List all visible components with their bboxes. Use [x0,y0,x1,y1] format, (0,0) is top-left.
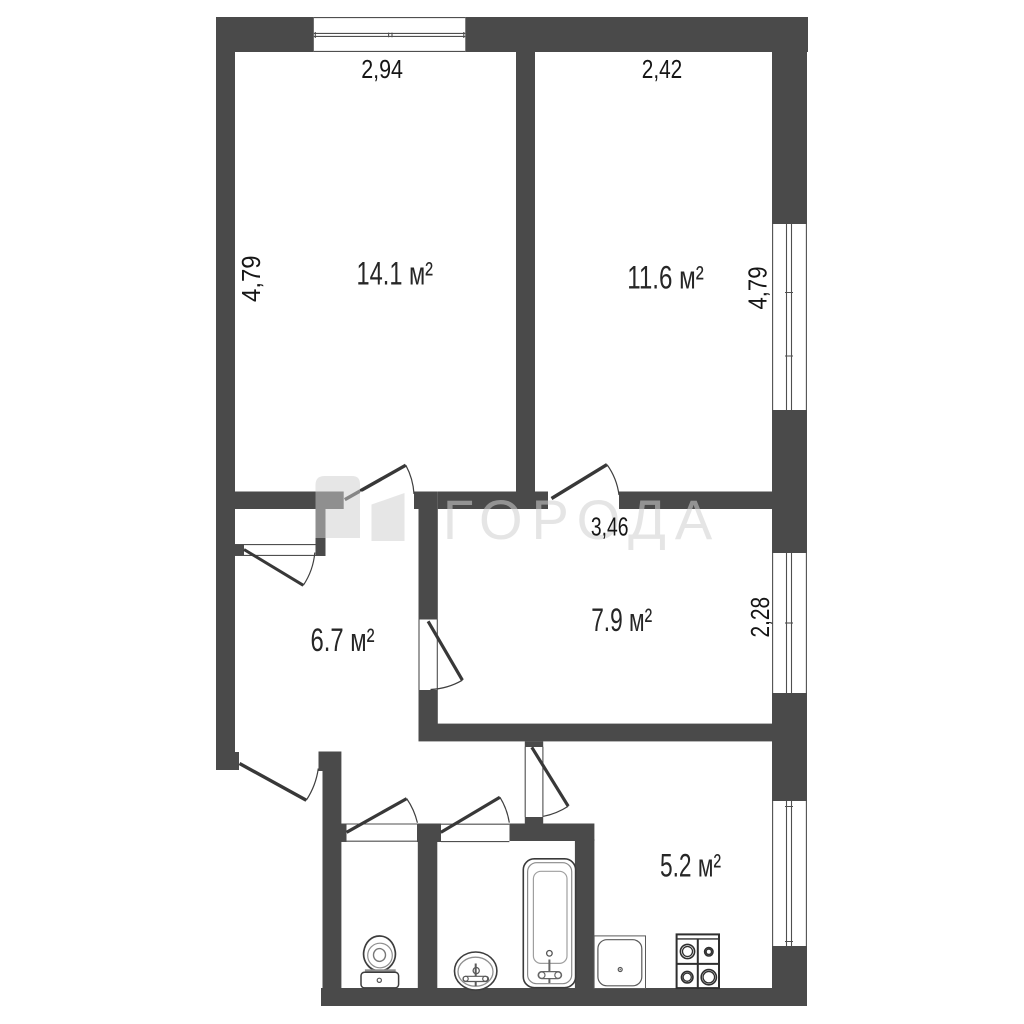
svg-text:5.2 м²: 5.2 м² [660,847,721,884]
svg-text:11.6 м²: 11.6 м² [627,259,704,296]
svg-text:6.7 м²: 6.7 м² [311,621,375,658]
svg-text:2,94: 2,94 [361,56,403,84]
svg-text:2,42: 2,42 [642,56,683,84]
svg-text:4,79: 4,79 [745,267,773,310]
svg-text:3,46: 3,46 [591,514,629,542]
svg-text:7.9 м²: 7.9 м² [591,601,652,638]
svg-text:2,28: 2,28 [747,597,775,638]
svg-text:14.1 м²: 14.1 м² [357,254,434,291]
svg-text:4,79: 4,79 [238,255,266,302]
svg-text:ГОРОДА: ГОРОДА [443,488,721,551]
